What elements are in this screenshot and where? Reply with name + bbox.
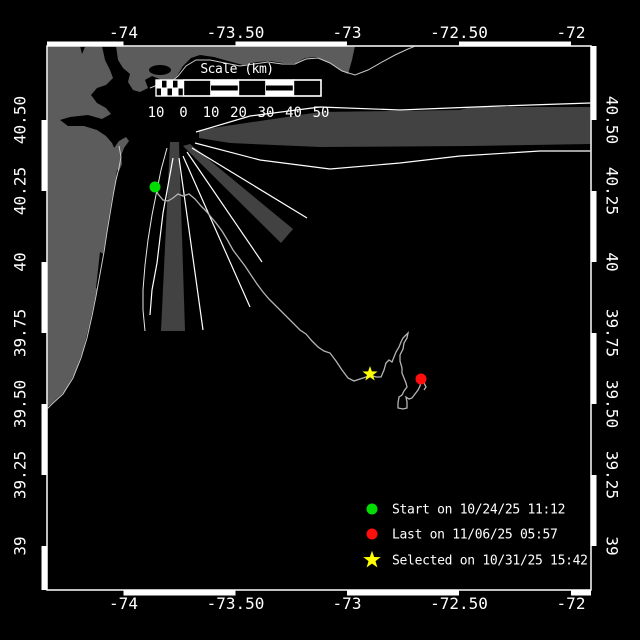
scale-bar-number: 20 xyxy=(230,105,247,121)
lat-tick-label-right: 39.75 xyxy=(602,309,621,357)
scale-bar-segment xyxy=(184,80,212,96)
scale-bar-checker-cell xyxy=(162,88,168,96)
scale-bar-number: 10 xyxy=(203,105,220,121)
track-legend: Start on 10/24/25 11:12 Last on 11/06/25… xyxy=(363,503,587,569)
lat-tick-label-left: 40.50 xyxy=(11,96,30,144)
lat-tick-label-right: 40 xyxy=(602,252,621,271)
scale-bar-title: Scale (km) xyxy=(200,62,273,77)
legend-last-dot xyxy=(367,529,378,540)
legend-last-label: Last on 11/06/25 05:57 xyxy=(392,528,558,543)
lat-tick-label-left: 39.25 xyxy=(11,451,30,499)
scale-bar-checker-cell xyxy=(178,88,184,96)
lat-tick-label-left: 39.50 xyxy=(11,380,30,428)
lon-tick-label-top: -72 xyxy=(557,23,586,42)
lat-tick-label-right: 40.25 xyxy=(602,167,621,215)
scale-bar-number: 0 xyxy=(179,105,187,121)
scale-bar-checker-cell xyxy=(167,88,173,96)
scale-bar-checker-cell xyxy=(156,80,162,88)
map-canvas[interactable]: Scale (km) 1001020304050 -74-74-73.50-73… xyxy=(0,0,640,640)
jamaica-bay xyxy=(149,65,171,75)
lon-tick-label-bottom: -74 xyxy=(109,594,138,613)
scale-bar-number: 10 xyxy=(148,105,165,121)
lat-tick-label-right: 40.50 xyxy=(602,96,621,144)
scale-bar-number: 50 xyxy=(313,105,330,121)
scale-bar-number: 40 xyxy=(285,105,302,121)
scale-bar-checker-cell xyxy=(173,88,179,96)
lon-tick-label-bottom: -73 xyxy=(333,594,362,613)
lat-tick-label-left: 39.75 xyxy=(11,309,30,357)
lat-tick-label-left: 39 xyxy=(11,536,30,555)
scale-bar-checker-cell xyxy=(162,80,168,88)
scale-bar-segment-stripe xyxy=(266,86,294,91)
scale-bar-segment xyxy=(294,80,322,96)
start-marker[interactable] xyxy=(150,182,161,193)
scale-bar-checker-cell xyxy=(178,80,184,88)
scale-bar-segment-stripe xyxy=(211,86,239,91)
lat-tick-label-right: 39.50 xyxy=(602,380,621,428)
scale-bar-checker-cell xyxy=(167,80,173,88)
legend-selected-label: Selected on 10/31/25 15:42 xyxy=(392,554,588,569)
scale-bar-checker-cell xyxy=(173,80,179,88)
scale-bar-boxes xyxy=(156,80,321,96)
last-marker[interactable] xyxy=(416,374,427,385)
lon-tick-label-bottom: -72.50 xyxy=(430,594,488,613)
lat-tick-label-left: 40.25 xyxy=(11,167,30,215)
lon-tick-label-top: -74 xyxy=(109,23,138,42)
lat-tick-label-right: 39.25 xyxy=(602,451,621,499)
lat-tick-label-right: 39 xyxy=(602,536,621,555)
lon-tick-label-top: -72.50 xyxy=(430,23,488,42)
lon-tick-label-bottom: -72 xyxy=(557,594,586,613)
lat-tick-label-left: 40 xyxy=(11,252,30,271)
lon-tick-label-top: -73 xyxy=(333,23,362,42)
scale-bar-segment xyxy=(239,80,267,96)
buoy-track-map-screen: Scale (km) 1001020304050 -74-74-73.50-73… xyxy=(0,0,640,640)
legend-start-label: Start on 10/24/25 11:12 xyxy=(392,503,565,518)
lon-tick-label-top: -73.50 xyxy=(207,23,265,42)
legend-start-dot xyxy=(367,504,378,515)
scale-bar-number: 30 xyxy=(258,105,275,121)
scale-bar-checker-cell xyxy=(156,88,162,96)
lon-tick-label-bottom: -73.50 xyxy=(207,594,265,613)
